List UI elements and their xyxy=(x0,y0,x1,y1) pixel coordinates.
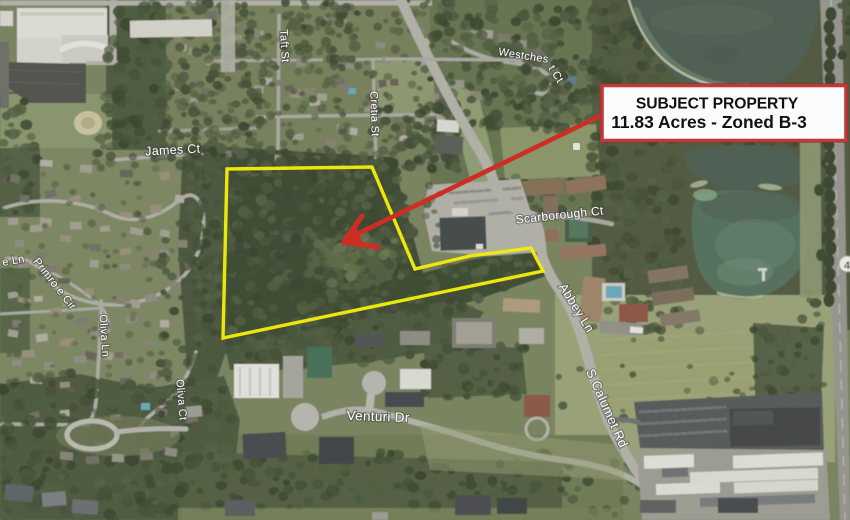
svg-text:11.83 Acres - Zoned B-3: 11.83 Acres - Zoned B-3 xyxy=(611,112,807,132)
svg-text:Venturi Dr: Venturi Dr xyxy=(346,408,410,425)
svg-text:Taft St: Taft St xyxy=(277,29,291,63)
svg-text:SUBJECT PROPERTY: SUBJECT PROPERTY xyxy=(636,96,799,113)
svg-text:Cretia St: Cretia St xyxy=(367,91,381,137)
svg-text:James Ct: James Ct xyxy=(145,142,201,159)
